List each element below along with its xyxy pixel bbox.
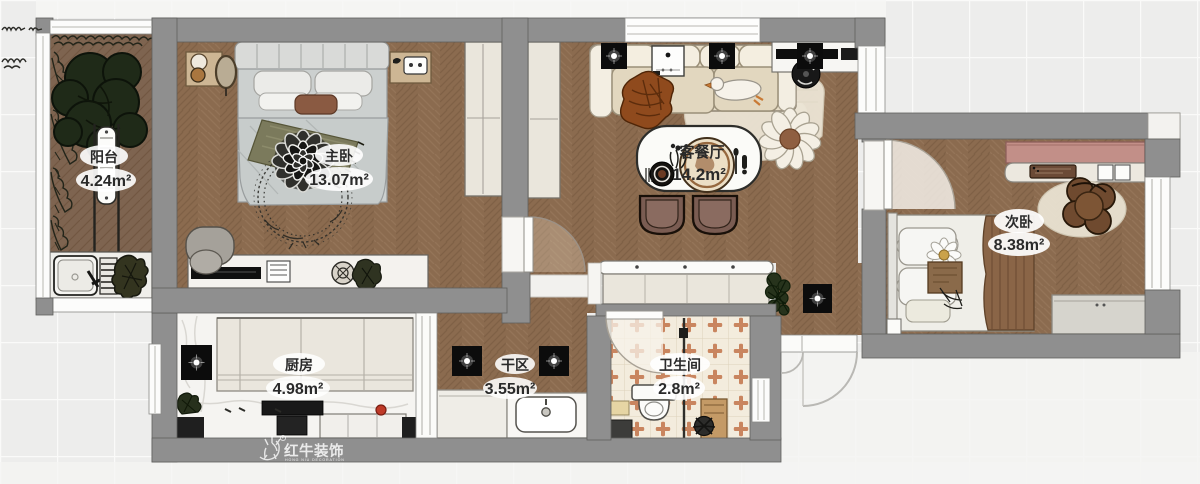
svg-text:干区: 干区 [501,357,529,373]
svg-text:主卧: 主卧 [325,148,353,164]
svg-text:卫生间: 卫生间 [659,357,701,373]
svg-text:14.2m²: 14.2m² [672,165,726,184]
svg-text:2.8m²: 2.8m² [658,381,700,398]
svg-text:客餐厅: 客餐厅 [678,143,724,161]
svg-text:4.24m²: 4.24m² [81,173,132,190]
svg-text:8.38m²: 8.38m² [994,237,1045,254]
svg-text:HONG NIU DECORATION: HONG NIU DECORATION [285,458,345,462]
svg-text:阳台: 阳台 [90,149,118,165]
svg-text:次卧: 次卧 [1005,214,1033,230]
svg-text:3.55m²: 3.55m² [485,381,536,398]
svg-text:厨房: 厨房 [285,357,313,373]
svg-text:13.07m²: 13.07m² [309,172,369,189]
svg-text:4.98m²: 4.98m² [273,381,324,398]
